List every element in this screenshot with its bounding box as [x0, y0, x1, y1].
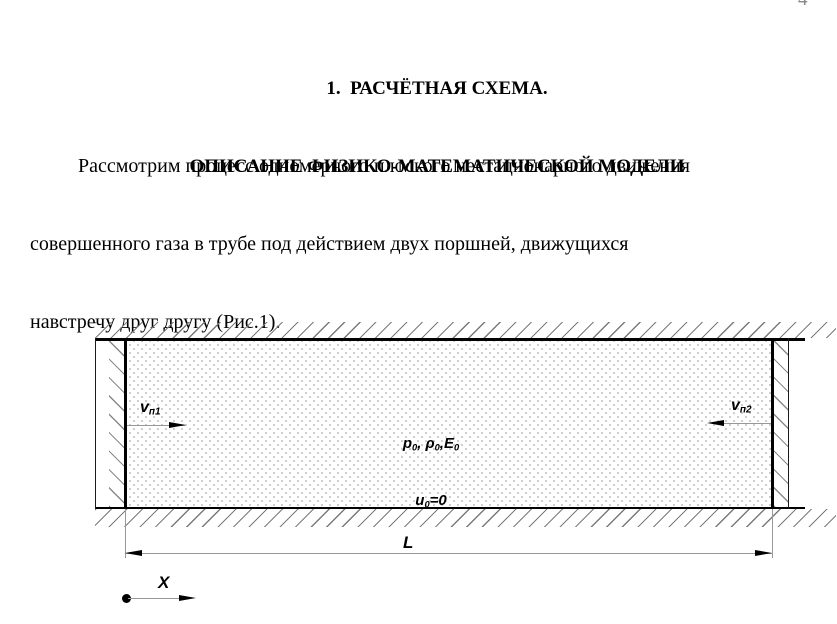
piston1-arrowhead-icon [169, 422, 186, 428]
left-piston-hatching [109, 341, 124, 507]
gas-state-seg-sub: 0 [454, 442, 459, 452]
gas-state-label: p0, ρ0,E0 u0=0 [376, 396, 486, 529]
heading-line-1: 1. РАСЧЁТНАЯ СХЕМА. [37, 76, 837, 102]
gas-state-seg: E [444, 435, 454, 452]
gas-state-seg: =0 [430, 492, 447, 509]
length-label: L [403, 533, 413, 553]
piston1-velocity-label: vп1 [140, 399, 160, 417]
paragraph-line-1: Рассмотрим процесс одномерного плоского … [30, 153, 815, 179]
piston1-velocity-base: v [140, 399, 149, 416]
gas-state-seg: ρ [426, 435, 435, 452]
gas-state-seg: , [417, 435, 425, 452]
piston2-arrowhead-icon [707, 420, 724, 426]
document-page: { "page": { "number": "4" }, "heading": … [0, 0, 837, 624]
dimension-arrowhead-right-icon [755, 550, 772, 556]
right-piston-hatching [774, 341, 788, 507]
length-dimension-line [125, 553, 772, 554]
axis-label: X [158, 573, 169, 593]
left-tube-end-line [95, 338, 96, 509]
paragraph-line-2: совершенного газа в трубе под действием … [30, 231, 815, 257]
dimension-arrowhead-left-icon [125, 550, 142, 556]
axis-arrowhead-icon [179, 595, 196, 601]
gas-state-line-1: p0, ρ0,E0 [376, 434, 486, 453]
piston2-velocity-sub: п2 [740, 404, 752, 415]
right-tube-end-line [788, 338, 789, 509]
top-wall-hatching [95, 322, 836, 338]
piston1-velocity-sub: п1 [149, 406, 161, 417]
left-piston-face [124, 339, 127, 508]
piston2-velocity-label: vп2 [731, 397, 751, 415]
page-number: 4 [798, 0, 808, 11]
piston2-velocity-base: v [731, 397, 740, 414]
gas-state-seg: p [403, 435, 412, 452]
gas-state-line-2: u0=0 [376, 491, 486, 510]
